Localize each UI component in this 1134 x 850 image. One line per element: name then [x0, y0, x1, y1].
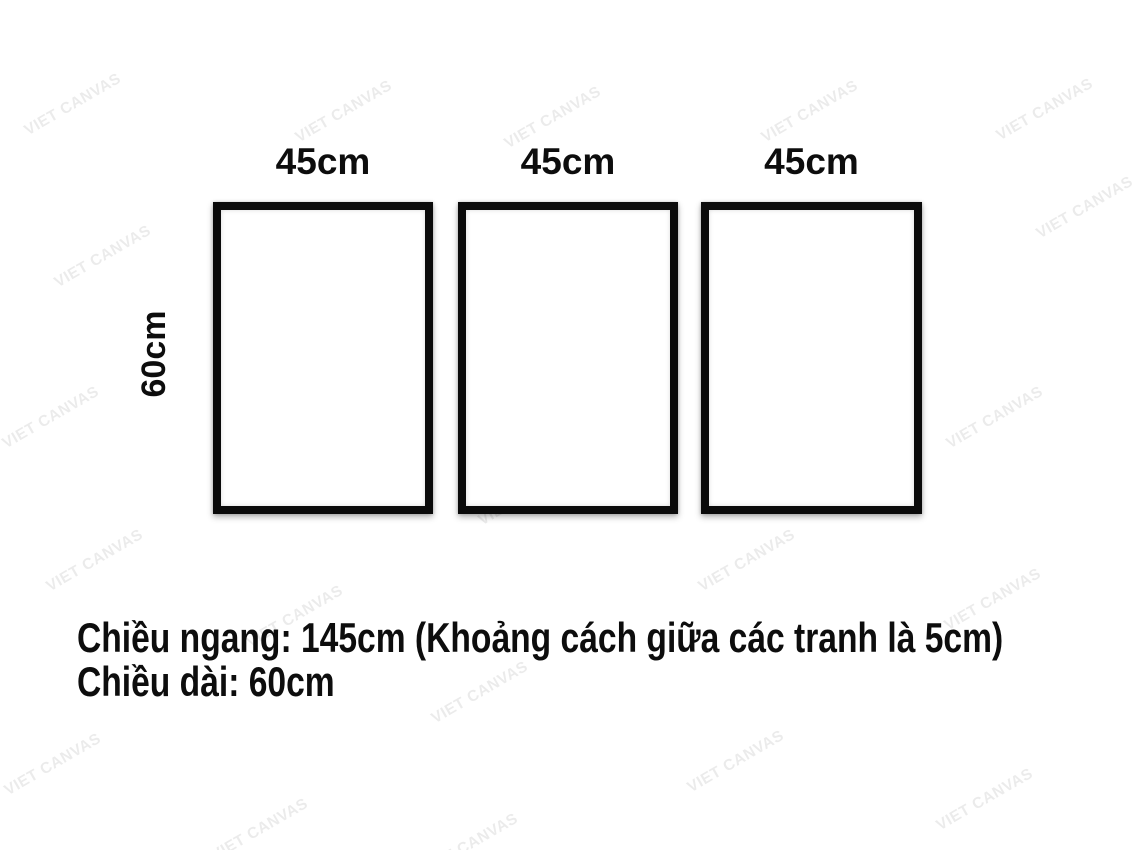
watermark-text: VIET CANVAS	[695, 526, 798, 596]
watermark-text: VIET CANVAS	[0, 383, 103, 453]
watermark-text: VIET CANVAS	[933, 765, 1036, 835]
watermark-text: VIET CANVAS	[758, 77, 861, 147]
watermark-text: VIET CANVAS	[21, 70, 124, 140]
canvas-dimension-diagram: VIET CANVASVIET CANVASVIET CANVASVIET CA…	[0, 0, 1134, 850]
watermark-text: VIET CANVAS	[684, 727, 787, 797]
frame-height-label: 60cm	[134, 294, 174, 414]
caption: Chiều ngang: 145cm (Khoảng cách giữa các…	[77, 616, 1003, 704]
caption-horizontal-dimension: Chiều ngang: 145cm (Khoảng cách giữa các…	[77, 616, 1003, 660]
watermark-text: VIET CANVAS	[292, 77, 395, 147]
watermark-text: VIET CANVAS	[1, 730, 104, 800]
watermark-text: VIET CANVAS	[418, 810, 521, 850]
watermark-text: VIET CANVAS	[51, 222, 154, 292]
frame-3-width-label: 45cm	[701, 141, 922, 183]
watermark-text: VIET CANVAS	[208, 795, 311, 850]
canvas-frame-1	[213, 202, 433, 514]
frame-1-width-label: 45cm	[213, 141, 433, 183]
caption-vertical-dimension: Chiều dài: 60cm	[77, 660, 1003, 704]
watermark-text: VIET CANVAS	[43, 526, 146, 596]
canvas-frame-2	[458, 202, 678, 514]
watermark-text: VIET CANVAS	[993, 75, 1096, 145]
frame-2-width-label: 45cm	[458, 141, 678, 183]
canvas-frame-3	[701, 202, 922, 514]
watermark-text: VIET CANVAS	[1033, 173, 1134, 243]
watermark-text: VIET CANVAS	[943, 383, 1046, 453]
